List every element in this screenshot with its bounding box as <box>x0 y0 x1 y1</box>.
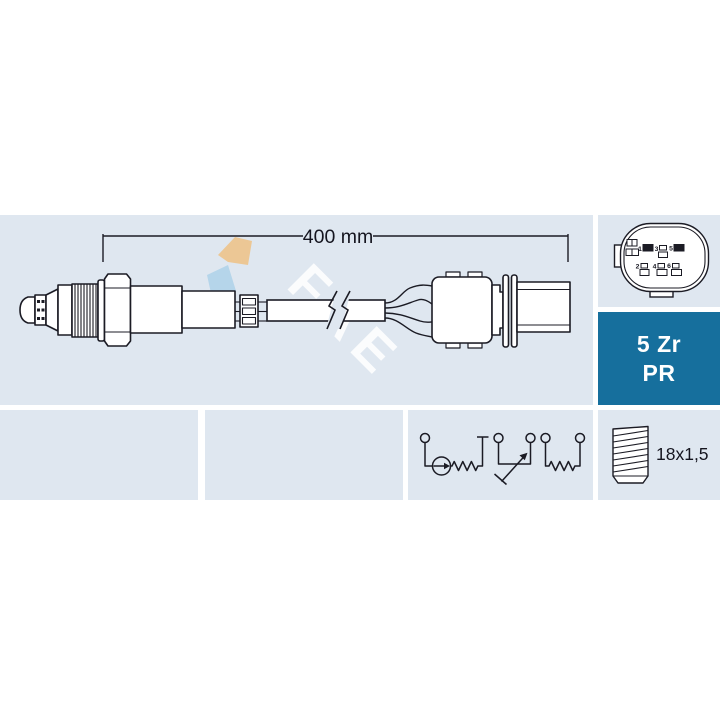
dimension-label: 400 mm <box>303 226 373 248</box>
connector-plug <box>432 272 570 348</box>
connector-pinout-panel: 1 3 5 2 4 6 <box>598 215 720 307</box>
connector-neck <box>492 285 503 335</box>
sensor-thread <box>72 284 98 337</box>
sensor-shell <box>58 285 72 335</box>
empty-panel-2 <box>205 410 403 500</box>
spec-badge-line2: PR <box>643 359 676 388</box>
sensor-tip <box>20 297 35 323</box>
sensor-body-front <box>131 286 183 333</box>
fae-logo-flag-tan-icon <box>218 237 252 265</box>
main-drawing-panel: FAE 400 mm <box>0 215 593 405</box>
pin-3-label: 3 <box>655 246 659 253</box>
thread-size-label: 18x1,5 <box>656 444 709 464</box>
connector-flange <box>503 275 509 347</box>
crimp-ferrule <box>243 299 256 306</box>
sensor-cone <box>46 289 58 331</box>
spec-badge: 5 Zr PR <box>598 312 720 405</box>
spec-badge-line1: 5 Zr <box>637 330 681 359</box>
pin-4-label: 4 <box>653 264 657 271</box>
lambda-sensor-drawing: FAE 400 mm <box>0 215 593 405</box>
circuit-trim-resistor <box>494 434 535 485</box>
fae-watermark-text: FAE <box>277 253 415 391</box>
circuit-diagram <box>408 410 593 500</box>
pin-5-label: 5 <box>669 246 673 253</box>
crimp-ferrule <box>243 308 256 315</box>
circuit-diagram-panel <box>408 410 593 500</box>
sensor-hex-nut <box>105 274 131 346</box>
thread-spec: 18x1,5 <box>598 410 720 500</box>
pin-1-contact <box>643 245 653 252</box>
connector-flange <box>512 275 518 347</box>
pin-6-label: 6 <box>667 263 671 270</box>
crimp-ferrule <box>243 318 256 325</box>
sensor-flange <box>98 280 105 341</box>
circuit-heater-resistor <box>541 434 585 471</box>
connector-pinout-diagram: 1 3 5 2 4 6 <box>598 215 720 307</box>
pin-1-label: 1 <box>638 246 642 253</box>
connector-housing <box>432 277 492 343</box>
empty-panel-1 <box>0 410 198 500</box>
thread-spec-panel: 18x1,5 <box>598 410 720 500</box>
circuit-sense-cell <box>421 434 489 476</box>
sensor-body-rear <box>182 291 235 328</box>
pin-2-label: 2 <box>636 264 640 271</box>
pin-5-contact <box>674 245 684 252</box>
product-image: FAE 400 mm <box>0 0 720 720</box>
